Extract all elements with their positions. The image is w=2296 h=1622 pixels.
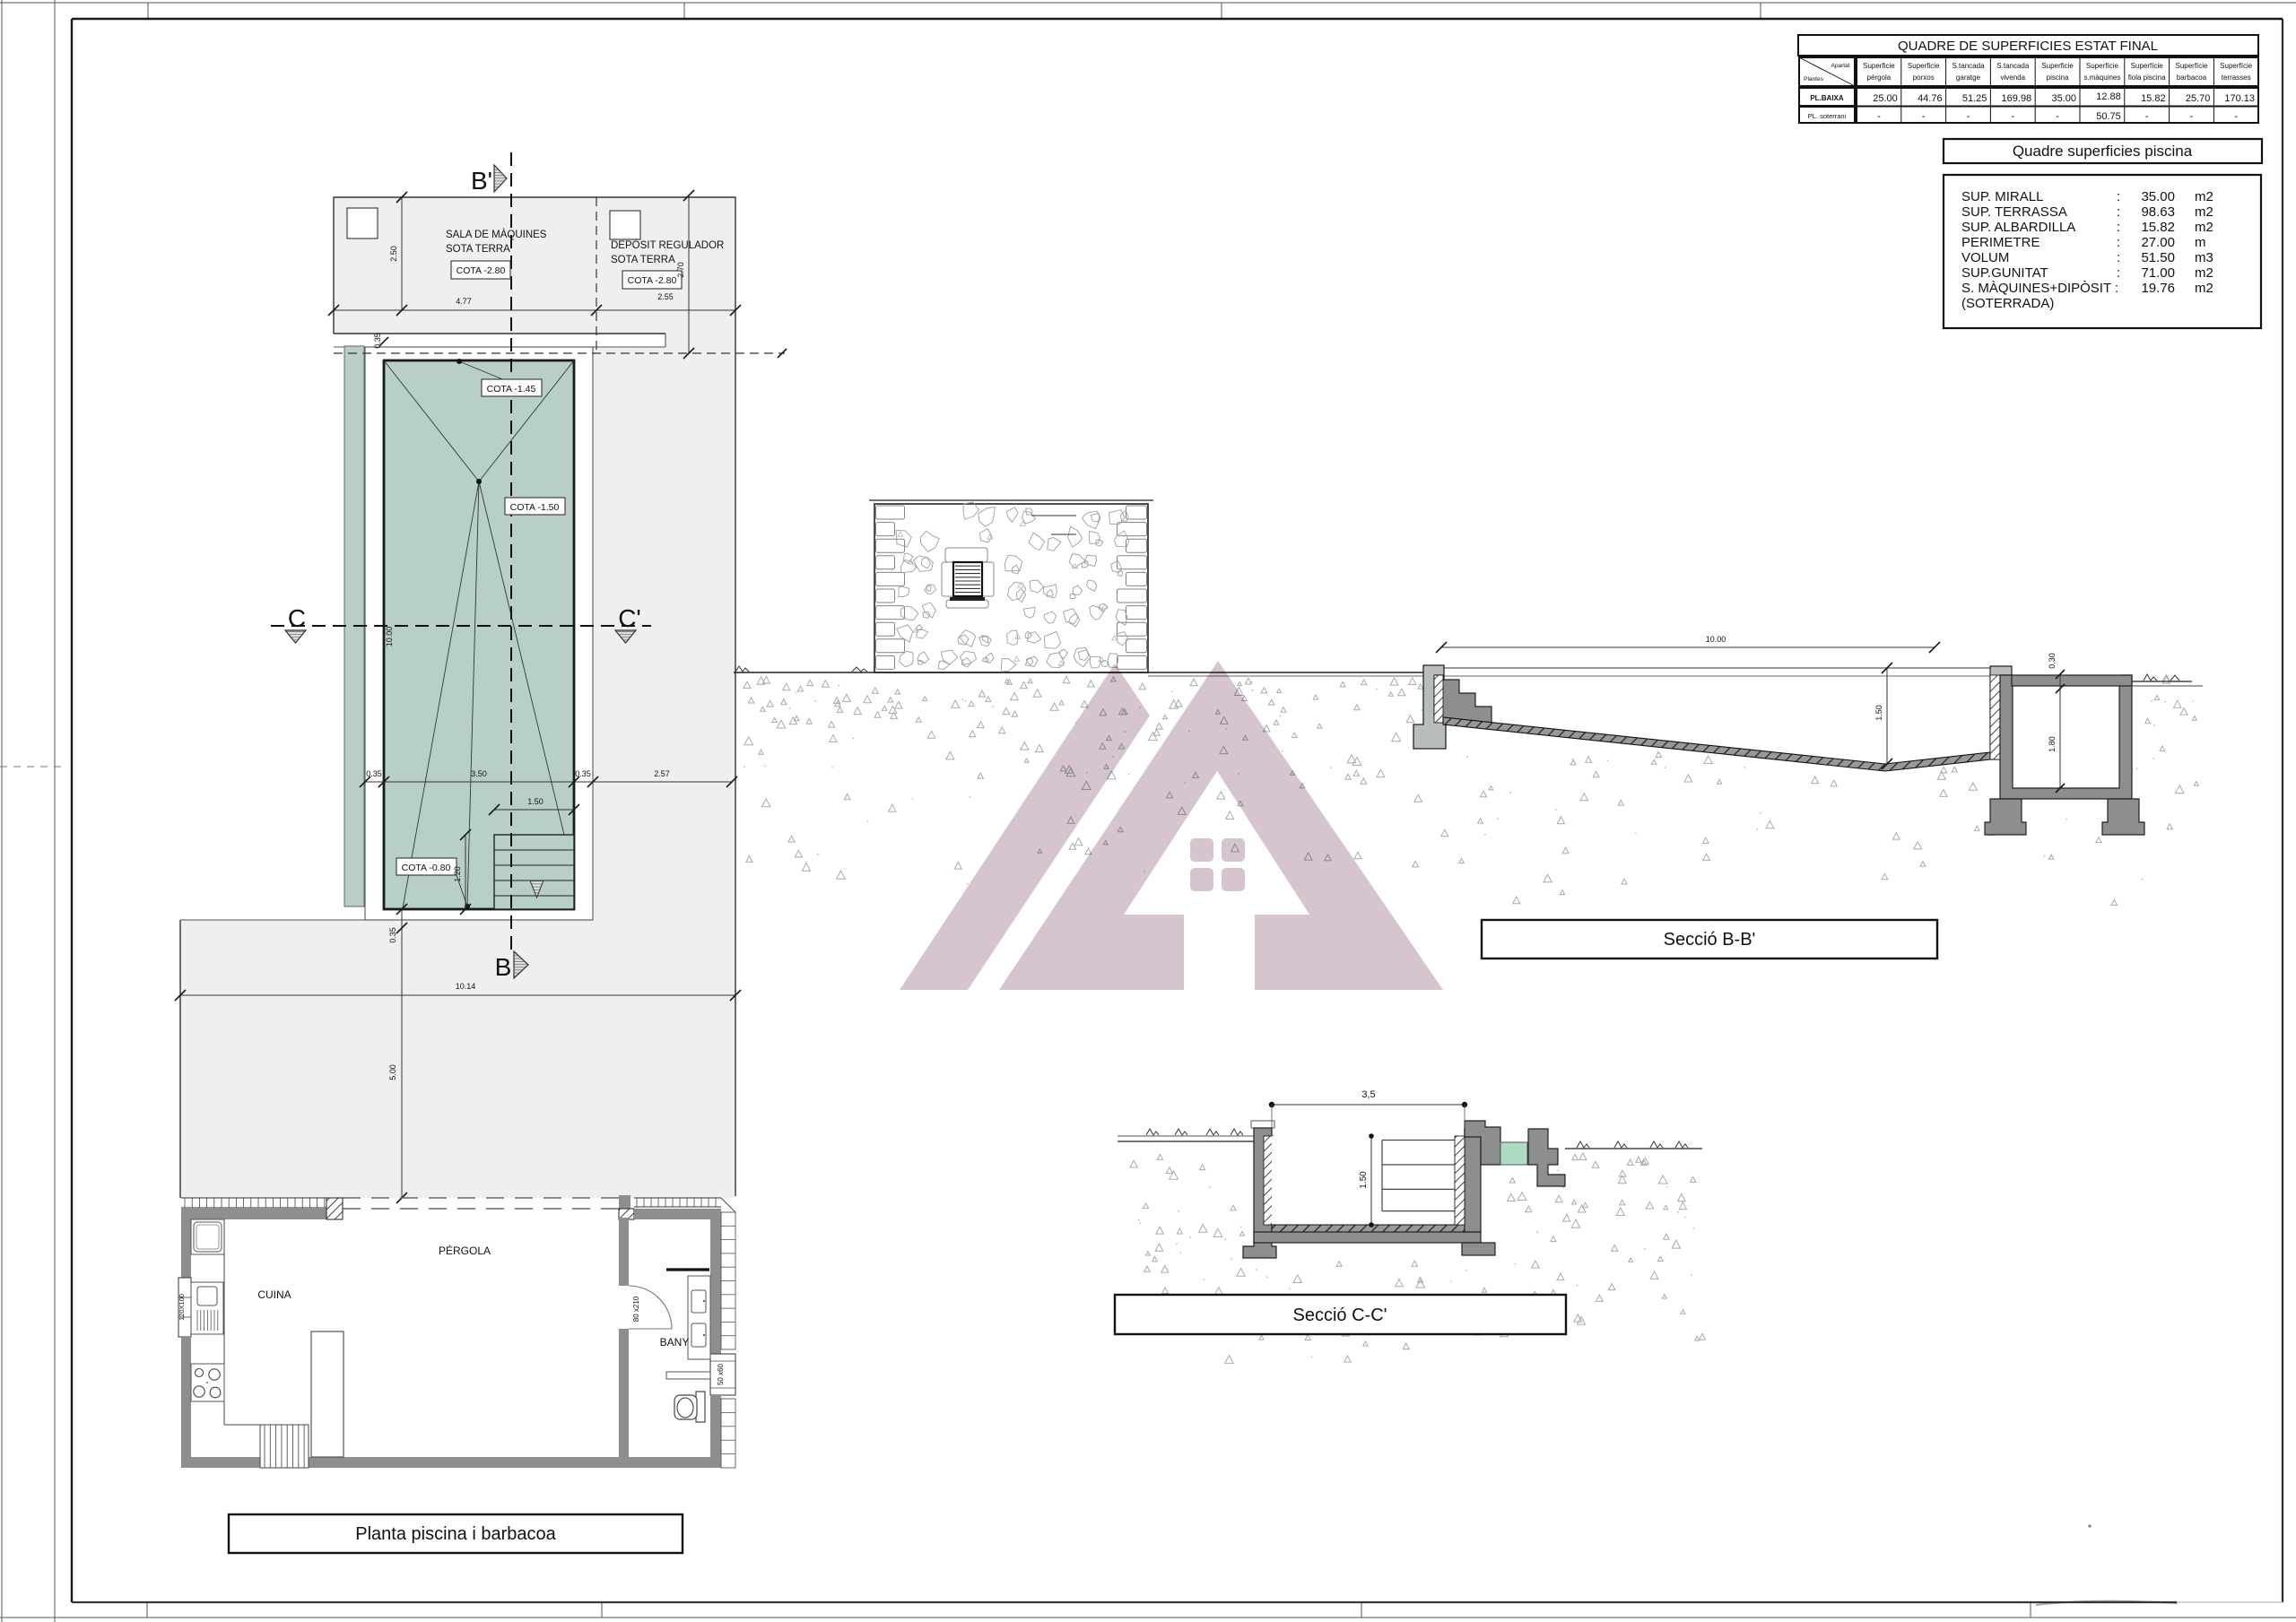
- svg-text:15.82: 15.82: [2141, 93, 2166, 104]
- svg-text:-: -: [1922, 111, 1926, 122]
- svg-text:2.50: 2.50: [389, 246, 398, 262]
- svg-text:m2: m2: [2195, 281, 2213, 296]
- svg-text:QUADRE DE SUPERFICIES ESTAT FI: QUADRE DE SUPERFICIES ESTAT FINAL: [1898, 39, 2158, 54]
- svg-text:0.30: 0.30: [2048, 653, 2057, 669]
- svg-text:51.50: 51.50: [2141, 250, 2175, 265]
- svg-text:SALA DE MÀQUINES: SALA DE MÀQUINES: [446, 229, 547, 240]
- svg-text:terrasses: terrasses: [2222, 74, 2251, 82]
- svg-text:3.50: 3.50: [471, 769, 487, 778]
- svg-text:COTA -1.45: COTA -1.45: [487, 384, 536, 395]
- svg-text:169.98: 169.98: [2002, 93, 2032, 104]
- svg-text:SUP. MIRALL: SUP. MIRALL: [1961, 189, 2043, 204]
- svg-text:71.00: 71.00: [2141, 265, 2175, 281]
- svg-text:-: -: [2190, 111, 2194, 122]
- svg-text:m2: m2: [2195, 204, 2213, 220]
- svg-text:27.00: 27.00: [2141, 235, 2175, 250]
- svg-text:COTA -2.80: COTA -2.80: [628, 275, 677, 286]
- svg-text:10.00: 10.00: [1706, 635, 1726, 644]
- svg-text:Secció C-C': Secció C-C': [1293, 1305, 1387, 1325]
- svg-text:2.57: 2.57: [654, 769, 670, 778]
- svg-text:COTA -2.80: COTA -2.80: [457, 265, 506, 276]
- svg-text:Secció B-B': Secció B-B': [1664, 930, 1756, 950]
- svg-text:Plantes: Plantes: [1804, 76, 1823, 82]
- svg-text:PL. soterrani: PL. soterrani: [1808, 112, 1847, 120]
- svg-text:PL.BAIXA: PL.BAIXA: [1810, 94, 1844, 102]
- svg-text:S.tancada: S.tancada: [1952, 62, 1985, 70]
- svg-text::: :: [2117, 235, 2120, 250]
- svg-text:PERIMETRE: PERIMETRE: [1961, 235, 2040, 250]
- svg-text:COTA -1.50: COTA -1.50: [510, 502, 560, 513]
- svg-text:-: -: [2234, 111, 2238, 122]
- svg-text::: :: [2117, 189, 2120, 204]
- svg-text:50 x60: 50 x60: [717, 1363, 725, 1385]
- svg-text:12.88: 12.88: [2096, 91, 2121, 102]
- svg-text:S.tancada: S.tancada: [1996, 62, 2030, 70]
- svg-text:3,5: 3,5: [1361, 1089, 1375, 1100]
- svg-text:1.20: 1.20: [453, 866, 462, 882]
- svg-text:S. MÀQUINES+DIPÒSIT :: S. MÀQUINES+DIPÒSIT :: [1961, 281, 2118, 296]
- svg-text:piscina: piscina: [2047, 74, 2069, 82]
- svg-text:0.35: 0.35: [366, 769, 382, 778]
- svg-text:COTA -0.80: COTA -0.80: [402, 863, 451, 873]
- svg-text:barbacoa: barbacoa: [2177, 74, 2207, 82]
- svg-text:Superficie: Superficie: [1863, 62, 1895, 70]
- svg-text:19.76: 19.76: [2141, 281, 2175, 296]
- svg-text:51.25: 51.25: [1962, 93, 1987, 104]
- svg-text:1.50: 1.50: [1874, 705, 1883, 721]
- svg-text::: :: [2117, 265, 2120, 281]
- svg-text:4.77: 4.77: [456, 297, 472, 306]
- svg-text:Superfície: Superfície: [2086, 62, 2119, 70]
- svg-text:VOLUM: VOLUM: [1961, 250, 2009, 265]
- svg-text:C': C': [618, 604, 641, 632]
- svg-text:pérgola: pérgola: [1867, 74, 1892, 82]
- svg-text:0.35: 0.35: [388, 927, 397, 943]
- svg-text:1.80: 1.80: [2048, 736, 2057, 752]
- svg-text:m2: m2: [2195, 189, 2213, 204]
- svg-text:B': B': [471, 167, 492, 195]
- svg-text:10.00: 10.00: [385, 627, 394, 647]
- svg-text:SUP.GUNITAT: SUP.GUNITAT: [1961, 265, 2048, 281]
- svg-text:vivenda: vivenda: [2001, 74, 2026, 82]
- svg-text:DEPÒSIT REGULADOR: DEPÒSIT REGULADOR: [611, 239, 724, 251]
- svg-text:50.75: 50.75: [2096, 111, 2121, 122]
- svg-text:BANY: BANY: [660, 1336, 690, 1349]
- svg-text:1.50: 1.50: [527, 797, 544, 806]
- svg-text:15.82: 15.82: [2141, 220, 2175, 235]
- svg-text:fiola piscina: fiola piscina: [2128, 74, 2166, 82]
- svg-text::: :: [2117, 204, 2120, 220]
- svg-text:44.76: 44.76: [1918, 93, 1943, 104]
- svg-text:(SOTERRADA): (SOTERRADA): [1961, 296, 2054, 311]
- svg-text:B: B: [495, 953, 512, 981]
- svg-text:SOTA TERRA: SOTA TERRA: [446, 244, 510, 255]
- svg-text:35.00: 35.00: [2051, 93, 2076, 104]
- svg-text:-: -: [1877, 111, 1881, 122]
- svg-text:Apartat: Apartat: [1831, 63, 1850, 69]
- svg-text:porxos: porxos: [1913, 74, 1935, 82]
- svg-text:25.70: 25.70: [2186, 93, 2211, 104]
- svg-text:m3: m3: [2195, 250, 2213, 265]
- svg-text:SUP. TERRASSA: SUP. TERRASSA: [1961, 204, 2067, 220]
- svg-text:-: -: [2011, 111, 2014, 122]
- svg-text:2.55: 2.55: [657, 292, 674, 301]
- svg-text:CUINA: CUINA: [257, 1288, 291, 1301]
- svg-text:s.màquines: s.màquines: [2083, 74, 2120, 82]
- svg-text:m2: m2: [2195, 220, 2213, 235]
- svg-text:-: -: [2056, 111, 2059, 122]
- svg-text:m: m: [2195, 235, 2206, 250]
- svg-text:-: -: [1967, 111, 1970, 122]
- svg-text:garatge: garatge: [1956, 74, 1981, 82]
- svg-text:170.13: 170.13: [2224, 93, 2255, 104]
- svg-text:5.00: 5.00: [388, 1064, 397, 1080]
- svg-text:35.00: 35.00: [2141, 189, 2175, 204]
- svg-text:SOTA TERRA: SOTA TERRA: [611, 255, 675, 265]
- svg-text:25.00: 25.00: [1873, 93, 1898, 104]
- svg-text:80 x210: 80 x210: [632, 1296, 640, 1322]
- svg-text:Quadre superficies piscina: Quadre superficies piscina: [2013, 143, 2193, 160]
- svg-text:Superfície: Superfície: [2131, 62, 2164, 70]
- svg-text:10.14: 10.14: [456, 982, 476, 991]
- svg-text:120X100: 120X100: [178, 1294, 186, 1321]
- svg-text:Superfície: Superfície: [2220, 62, 2253, 70]
- svg-text:SUP. ALBARDILLA: SUP. ALBARDILLA: [1961, 220, 2075, 235]
- svg-text:1.50: 1.50: [1359, 1171, 1369, 1189]
- svg-text:Superfície: Superfície: [2175, 62, 2208, 70]
- svg-text:Superficie: Superficie: [1908, 62, 1940, 70]
- svg-text:-: -: [2145, 111, 2149, 122]
- svg-text:C: C: [288, 604, 306, 632]
- svg-text:m2: m2: [2195, 265, 2213, 281]
- svg-text::: :: [2117, 220, 2120, 235]
- svg-text:Superficie: Superficie: [2041, 62, 2074, 70]
- svg-text:0.35: 0.35: [575, 769, 591, 778]
- svg-text:98.63: 98.63: [2141, 204, 2175, 220]
- svg-text:PÉRGOLA: PÉRGOLA: [439, 1244, 491, 1257]
- svg-text:2.70: 2.70: [676, 262, 685, 278]
- svg-text:0.35: 0.35: [373, 333, 382, 349]
- svg-text:Planta piscina i barbacoa: Planta piscina i barbacoa: [355, 1524, 556, 1544]
- svg-text::: :: [2117, 250, 2120, 265]
